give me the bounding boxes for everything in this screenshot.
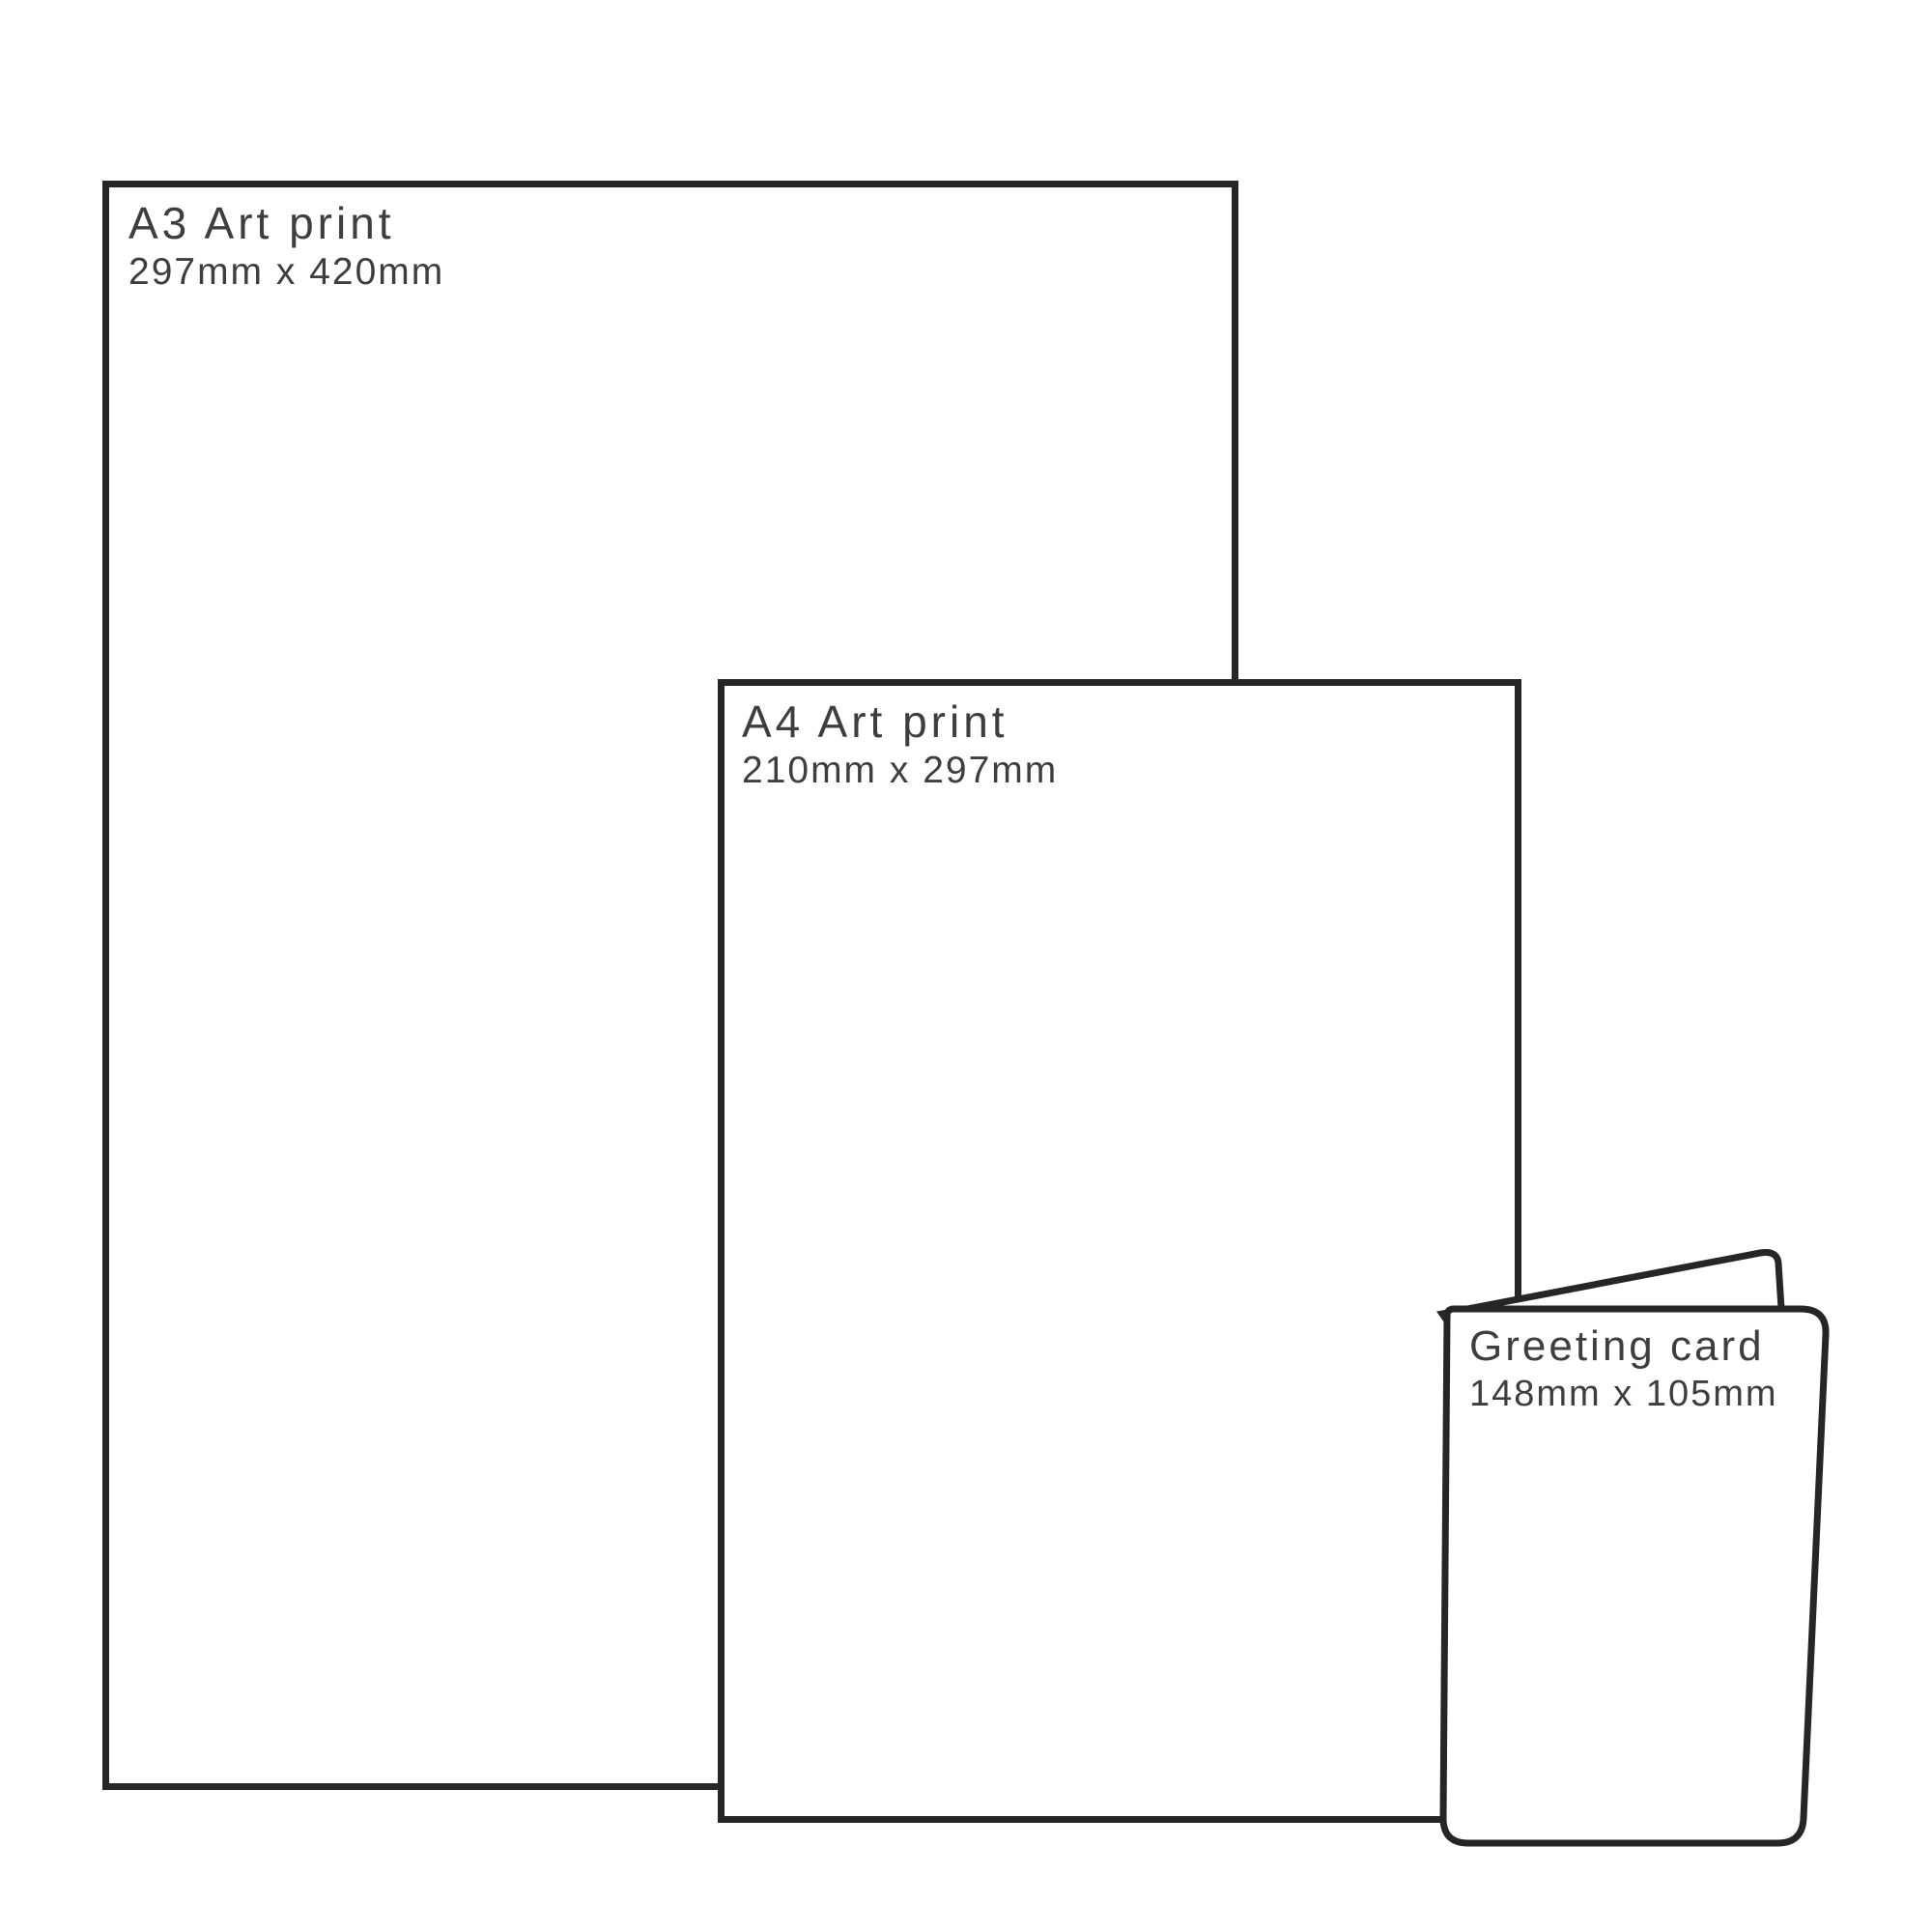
a4-print-title: A4 Art print: [742, 696, 1058, 748]
a3-print-label: A3 Art print 297mm x 420mm: [128, 197, 444, 296]
size-comparison-diagram: A3 Art print 297mm x 420mm A4 Art print …: [0, 0, 1932, 1932]
greeting-card-title: Greeting card: [1469, 1321, 1778, 1372]
a4-print-dimensions: 210mm x 297mm: [742, 748, 1058, 794]
a4-print-label: A4 Art print 210mm x 297mm: [742, 696, 1058, 794]
greeting-card-outline: [1372, 1207, 1913, 1893]
greeting-card-dimensions: 148mm x 105mm: [1469, 1372, 1778, 1416]
a3-print-title: A3 Art print: [128, 197, 444, 249]
greeting-card-label: Greeting card 148mm x 105mm: [1469, 1321, 1778, 1416]
a3-print-dimensions: 297mm x 420mm: [128, 249, 444, 296]
